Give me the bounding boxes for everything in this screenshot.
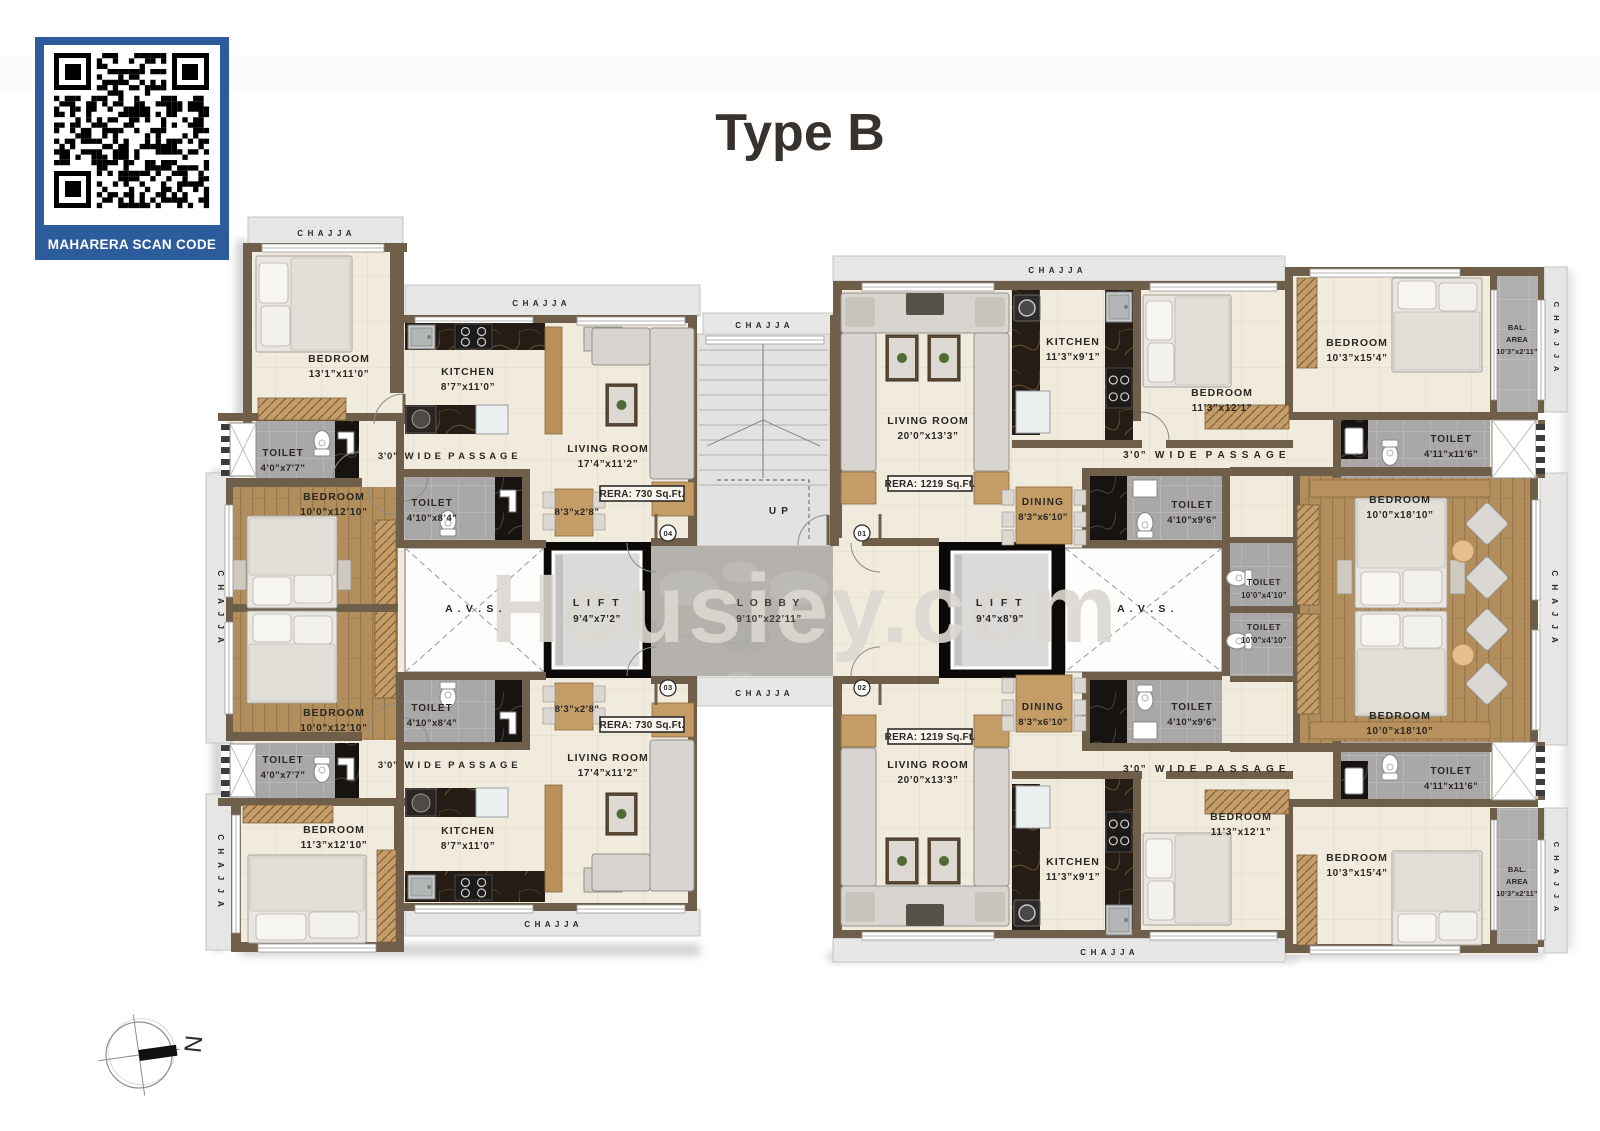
svg-text:BEDROOM: BEDROOM [1326, 337, 1388, 349]
svg-text:9’4”x8’9”: 9’4”x8’9” [976, 614, 1024, 625]
svg-text:20’0”x13’3”: 20’0”x13’3” [897, 431, 958, 442]
svg-text:TOILET: TOILET [262, 448, 303, 459]
svg-text:02: 02 [858, 683, 867, 692]
svg-text:8’3”x2’8”: 8’3”x2’8” [555, 704, 600, 715]
svg-text:TOILET: TOILET [1430, 434, 1471, 445]
svg-text:C H A J J A: C H A J J A [216, 570, 225, 645]
svg-text:4’10”x9’6”: 4’10”x9’6” [1167, 515, 1216, 526]
svg-text:04: 04 [664, 529, 673, 538]
svg-text:BEDROOM: BEDROOM [1210, 811, 1272, 823]
svg-text:9’10”x22’11”: 9’10”x22’11” [736, 614, 802, 625]
svg-text:C H A J J A: C H A J J A [1028, 266, 1083, 275]
svg-text:BEDROOM: BEDROOM [303, 491, 365, 503]
svg-text:L I F T: L I F T [976, 597, 1024, 609]
svg-text:10’3”x2’11”: 10’3”x2’11” [1496, 347, 1538, 356]
svg-text:U P: U P [769, 506, 789, 517]
svg-text:RERA: 730 Sq.Ft.: RERA: 730 Sq.Ft. [600, 720, 685, 731]
svg-text:C H A J J A: C H A J J A [735, 689, 790, 698]
svg-text:8’7”x11’0”: 8’7”x11’0” [441, 382, 495, 393]
svg-text:13’1”x11’0”: 13’1”x11’0” [309, 369, 370, 380]
svg-text:8’3”x6’10”: 8’3”x6’10” [1018, 512, 1067, 523]
svg-text:MAHARERA SCAN CODE: MAHARERA SCAN CODE [48, 237, 216, 252]
svg-text:TOILET: TOILET [262, 755, 303, 766]
svg-text:C H A J J A: C H A J J A [1552, 302, 1561, 375]
svg-text:10’0”x4’10”: 10’0”x4’10” [1241, 591, 1287, 600]
svg-text:KITCHEN: KITCHEN [441, 366, 495, 378]
svg-text:KITCHEN: KITCHEN [1046, 856, 1100, 868]
svg-text:BEDROOM: BEDROOM [303, 824, 365, 836]
svg-text:4’0”x7’7”: 4’0”x7’7” [261, 463, 306, 474]
svg-text:TOILET: TOILET [1247, 577, 1281, 587]
svg-text:BEDROOM: BEDROOM [308, 353, 370, 365]
svg-text:A . V . S .: A . V . S . [1117, 603, 1175, 615]
svg-text:RERA: 1219 Sq.Ft.: RERA: 1219 Sq.Ft. [885, 732, 976, 743]
svg-text:4’11”x11’6”: 4’11”x11’6” [1424, 781, 1478, 792]
svg-text:10’3”x2’11”: 10’3”x2’11” [1496, 889, 1538, 898]
svg-text:01: 01 [858, 529, 867, 538]
svg-text:10’3”x15’4”: 10’3”x15’4” [1326, 868, 1387, 879]
svg-text:4’10”x8’4”: 4’10”x8’4” [407, 718, 457, 729]
svg-text:TOILET: TOILET [1430, 766, 1471, 777]
svg-text:Type B: Type B [715, 104, 885, 162]
svg-text:11’3”x12’1”: 11’3”x12’1” [1192, 403, 1253, 414]
svg-text:KITCHEN: KITCHEN [1046, 336, 1100, 348]
svg-text:8’7”x11’0”: 8’7”x11’0” [441, 841, 495, 852]
svg-text:10’0”x18’10”: 10’0”x18’10” [1366, 726, 1433, 737]
svg-text:3’0” W I D E P A S S A G E: 3’0” W I D E P A S S A G E [378, 451, 518, 462]
svg-text:TOILET: TOILET [1171, 500, 1212, 511]
svg-text:C H A J J A: C H A J J A [512, 299, 567, 308]
svg-text:11’3”x9’1”: 11’3”x9’1” [1046, 352, 1100, 363]
svg-text:20’0”x13’3”: 20’0”x13’3” [897, 775, 958, 786]
svg-text:3’0” W I D E P A S S A G E: 3’0” W I D E P A S S A G E [1123, 450, 1287, 461]
svg-text:LIVING ROOM: LIVING ROOM [887, 415, 969, 427]
svg-text:10’0”x12’10”: 10’0”x12’10” [300, 507, 367, 518]
svg-text:RERA: 1219 Sq.Ft.: RERA: 1219 Sq.Ft. [885, 479, 976, 490]
svg-text:C H A J J A: C H A J J A [216, 834, 225, 909]
svg-text:BEDROOM: BEDROOM [1369, 494, 1431, 506]
svg-text:TOILET: TOILET [1247, 622, 1281, 632]
svg-text:8’3”x2’8”: 8’3”x2’8” [555, 507, 600, 518]
svg-text:N: N [178, 1034, 207, 1054]
svg-text:11’3”x12’1”: 11’3”x12’1” [1211, 827, 1272, 838]
svg-text:03: 03 [664, 683, 673, 692]
svg-text:L I F T: L I F T [573, 597, 621, 609]
svg-text:BAL.: BAL. [1508, 865, 1526, 874]
svg-text:17’4”x11’2”: 17’4”x11’2” [578, 459, 639, 470]
svg-text:C H A J J A: C H A J J A [1552, 842, 1561, 915]
svg-text:AREA: AREA [1506, 877, 1528, 886]
svg-text:A . V . S .: A . V . S . [445, 603, 503, 615]
svg-text:10’0”x12’10”: 10’0”x12’10” [300, 723, 367, 734]
svg-text:9’4”x7’2”: 9’4”x7’2” [573, 614, 621, 625]
svg-text:TOILET: TOILET [411, 498, 452, 509]
svg-text:4’11”x11’6”: 4’11”x11’6” [1424, 449, 1478, 460]
svg-text:3’0” W I D E P A S S A G E: 3’0” W I D E P A S S A G E [1123, 764, 1287, 775]
svg-text:10’0”x4’10”: 10’0”x4’10” [1241, 636, 1287, 645]
svg-text:C H A J J A: C H A J J A [1550, 570, 1559, 645]
svg-text:L O B B Y: L O B B Y [737, 597, 801, 609]
svg-text:C H A J J A: C H A J J A [524, 920, 579, 929]
svg-text:RERA: 730 Sq.Ft.: RERA: 730 Sq.Ft. [600, 489, 685, 500]
svg-text:BAL.: BAL. [1508, 323, 1526, 332]
svg-text:LIVING ROOM: LIVING ROOM [567, 752, 649, 764]
svg-text:BEDROOM: BEDROOM [303, 707, 365, 719]
svg-text:BEDROOM: BEDROOM [1326, 852, 1388, 864]
svg-text:8’3”x6’10”: 8’3”x6’10” [1018, 717, 1067, 728]
svg-text:TOILET: TOILET [411, 703, 452, 714]
svg-text:KITCHEN: KITCHEN [441, 825, 495, 837]
svg-text:C H A J J A: C H A J J A [735, 321, 790, 330]
svg-text:BEDROOM: BEDROOM [1369, 710, 1431, 722]
svg-text:DINING: DINING [1022, 702, 1064, 713]
svg-text:4’0”x7’7”: 4’0”x7’7” [261, 770, 306, 781]
svg-text:BEDROOM: BEDROOM [1191, 387, 1253, 399]
svg-text:11’3”x9’1”: 11’3”x9’1” [1046, 872, 1100, 883]
svg-text:LIVING ROOM: LIVING ROOM [887, 759, 969, 771]
svg-text:17’4”x11’2”: 17’4”x11’2” [578, 768, 639, 779]
svg-text:C H A J J A: C H A J J A [1080, 948, 1135, 957]
svg-text:3’0” W I D E P A S S A G E: 3’0” W I D E P A S S A G E [378, 760, 518, 771]
svg-text:4’10”x8’4”: 4’10”x8’4” [407, 513, 457, 524]
svg-text:AREA: AREA [1506, 335, 1528, 344]
svg-text:10’0”x18’10”: 10’0”x18’10” [1366, 510, 1433, 521]
svg-text:DINING: DINING [1022, 497, 1064, 508]
svg-text:C H A J J A: C H A J J A [297, 229, 352, 238]
svg-text:LIVING ROOM: LIVING ROOM [567, 443, 649, 455]
svg-text:4’10”x9’6”: 4’10”x9’6” [1167, 717, 1216, 728]
svg-text:TOILET: TOILET [1171, 702, 1212, 713]
svg-text:11’3”x12’10”: 11’3”x12’10” [301, 840, 368, 851]
svg-text:10’3”x15’4”: 10’3”x15’4” [1326, 353, 1387, 364]
